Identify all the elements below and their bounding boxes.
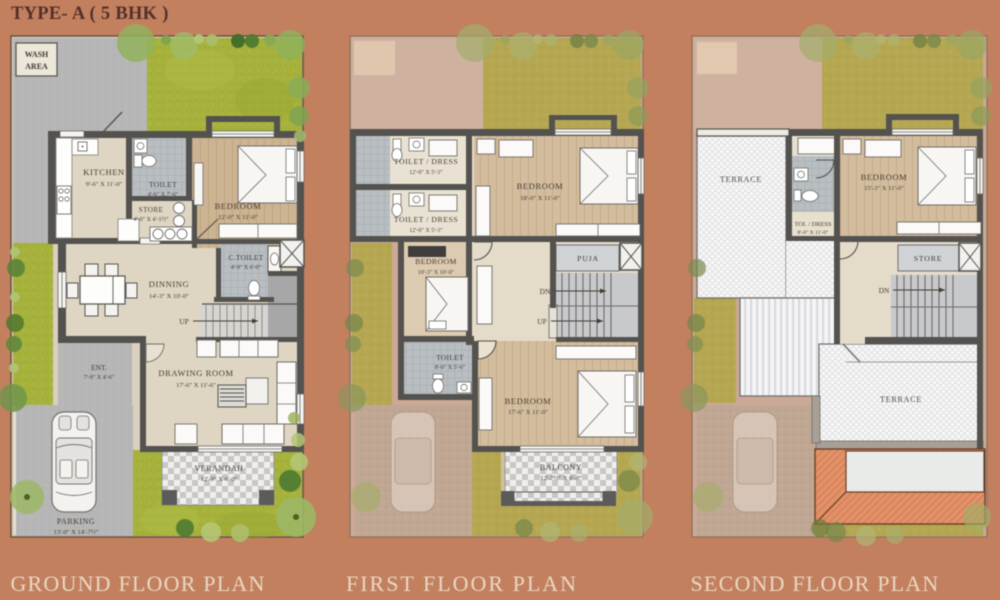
svg-text:8'-0" X 5'-6": 8'-0" X 5'-6": [435, 365, 466, 371]
svg-text:AREA: AREA: [25, 62, 48, 71]
svg-text:17'-6" X 11'-6": 17'-6" X 11'-6": [176, 382, 216, 389]
svg-text:DN: DN: [879, 286, 890, 295]
svg-text:10'-3" X 10'-0": 10'-3" X 10'-0": [418, 270, 455, 276]
svg-text:4'-0" X 4'-1½": 4'-0" X 4'-1½": [134, 216, 169, 223]
svg-text:12'-0" X 5'-3": 12'-0" X 5'-3": [409, 170, 443, 176]
svg-text:PUJA: PUJA: [577, 254, 599, 263]
svg-text:4'-6" X 7'-6": 4'-6" X 7'-6": [148, 192, 179, 198]
svg-text:DINNING: DINNING: [149, 279, 190, 289]
svg-text:7'-9" X 4'-6": 7'-9" X 4'-6": [84, 375, 115, 381]
svg-text:4'-9" X 6'-0": 4'-9" X 6'-0": [231, 265, 262, 271]
svg-text:9'-6" X 11'-0": 9'-6" X 11'-0": [86, 181, 123, 188]
svg-text:SECOND FLOOR PLAN: SECOND FLOOR PLAN: [691, 571, 940, 596]
svg-text:18'-0" X 11'-0": 18'-0" X 11'-0": [520, 195, 560, 202]
svg-text:TERRACE: TERRACE: [880, 395, 922, 404]
svg-text:12'-0" X 11'-0": 12'-0" X 11'-0": [218, 214, 258, 221]
svg-text:WASH: WASH: [25, 50, 49, 59]
svg-text:STORE: STORE: [914, 254, 943, 263]
svg-text:8'-0" X 11'-0": 8'-0" X 11'-0": [798, 230, 829, 236]
svg-text:BEDROOM: BEDROOM: [505, 396, 552, 406]
svg-text:VERANDAH: VERANDAH: [195, 464, 244, 473]
svg-text:ENT.: ENT.: [91, 363, 107, 372]
svg-text:DRAWING ROOM: DRAWING ROOM: [158, 368, 233, 378]
svg-text:C.TOILET: C.TOILET: [229, 253, 264, 262]
svg-text:17'-6" X 11'-0": 17'-6" X 11'-0": [508, 409, 548, 416]
svg-text:BALCONY: BALCONY: [540, 463, 582, 472]
svg-text:KITCHEN: KITCHEN: [83, 167, 125, 177]
svg-text:FIRST FLOOR PLAN: FIRST FLOOR PLAN: [346, 571, 578, 596]
svg-text:UP: UP: [537, 317, 546, 326]
svg-text:BEDROOM: BEDROOM: [215, 201, 262, 211]
svg-text:14'-3" X 10'-0": 14'-3" X 10'-0": [149, 293, 189, 300]
svg-text:BEDROOM: BEDROOM: [415, 257, 457, 266]
svg-text:TOILET / DRESS: TOILET / DRESS: [394, 157, 458, 166]
svg-text:UP: UP: [179, 317, 188, 326]
svg-text:TOILET: TOILET: [149, 180, 177, 189]
svg-text:13'-0" X 14'-7½": 13'-0" X 14'-7½": [54, 529, 99, 536]
svg-text:12'-0" X 5'-3": 12'-0" X 5'-3": [409, 228, 443, 234]
svg-text:DN: DN: [540, 287, 551, 296]
svg-text:TERRACE: TERRACE: [720, 175, 762, 184]
svg-text:TYPE- A ( 5 BHK ): TYPE- A ( 5 BHK ): [11, 4, 169, 24]
svg-text:TOI. / DRESS: TOI. / DRESS: [795, 221, 832, 228]
svg-text:STORE: STORE: [139, 206, 164, 214]
svg-text:TOILET: TOILET: [436, 353, 464, 362]
svg-text:15'-3" X 11'-0": 15'-3" X 11'-0": [864, 185, 904, 192]
svg-text:12'-9" X 6'-0": 12'-9" X 6'-0": [201, 476, 238, 483]
svg-text:BEDROOM: BEDROOM: [861, 172, 908, 182]
svg-text:TOILET / DRESS: TOILET / DRESS: [394, 215, 458, 224]
svg-text:GROUND FLOOR PLAN: GROUND FLOOR PLAN: [10, 571, 265, 596]
svg-text:BEDROOM: BEDROOM: [517, 181, 564, 191]
svg-text:12'-7½" X 6'-0": 12'-7½" X 6'-0": [540, 475, 582, 482]
svg-text:PARKING: PARKING: [57, 517, 95, 526]
